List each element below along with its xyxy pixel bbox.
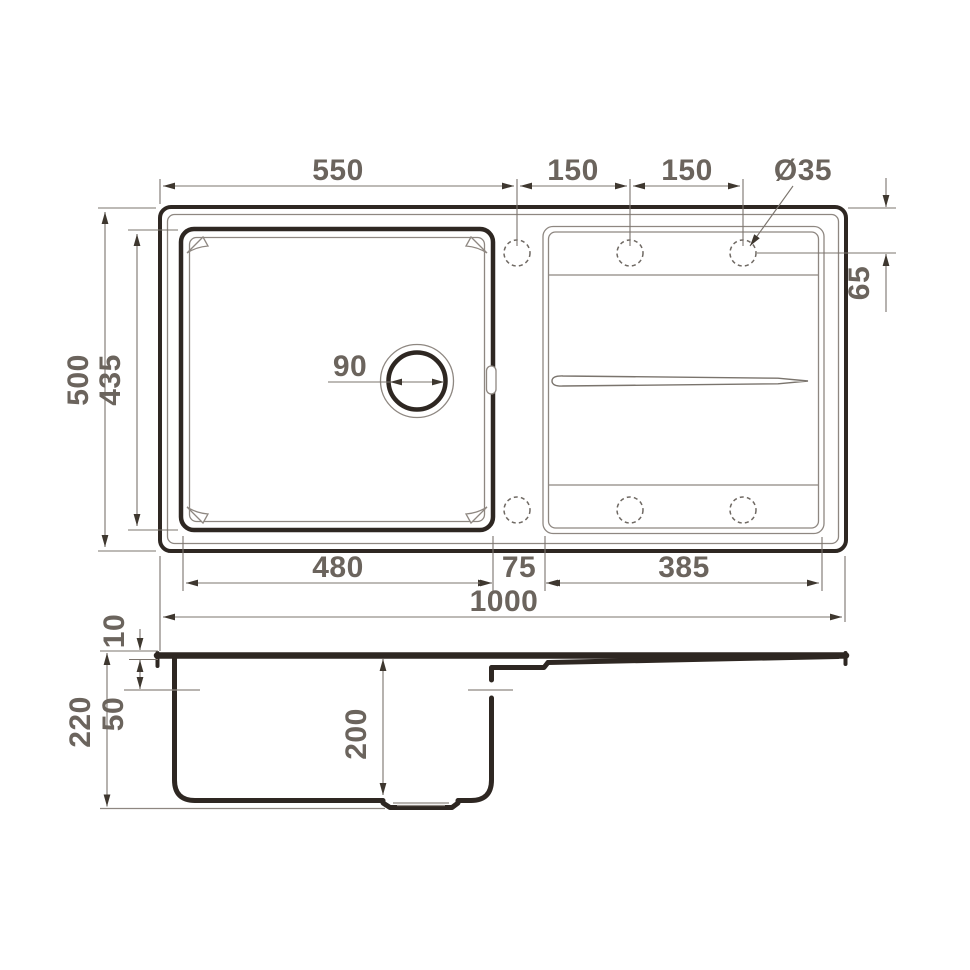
dim-label-1000: 1000 xyxy=(470,585,539,618)
dim-label-500: 500 xyxy=(62,354,95,406)
dim-label-220: 220 xyxy=(64,696,97,748)
dim-label-150-right: 150 xyxy=(661,154,713,187)
drainboard-groove xyxy=(552,376,808,386)
dim-label-200: 200 xyxy=(340,708,373,760)
dim-label-550: 550 xyxy=(312,154,364,187)
dim-label-385: 385 xyxy=(658,551,710,584)
dim-label-65: 65 xyxy=(843,266,876,300)
sink-technical-drawing: 550 150 150 Ø35 65 500 435 90 480 75 385… xyxy=(0,0,970,970)
dim-label-150-left: 150 xyxy=(547,154,599,187)
dim-label-480: 480 xyxy=(312,551,364,584)
dim-label-hole-diameter: Ø35 xyxy=(774,154,832,187)
dim-label-90: 90 xyxy=(333,350,367,383)
overflow-slot xyxy=(487,366,497,394)
dim-label-435: 435 xyxy=(94,354,127,406)
dim-label-75: 75 xyxy=(502,551,536,584)
dim-label-10: 10 xyxy=(98,614,131,648)
dim-label-50: 50 xyxy=(97,697,130,731)
